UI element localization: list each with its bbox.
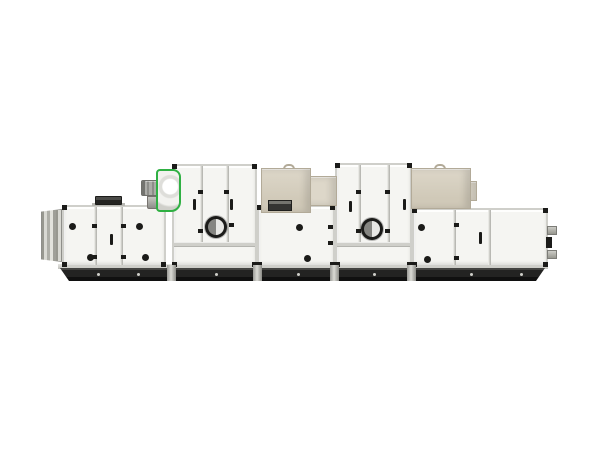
corner-bracket bbox=[161, 262, 166, 267]
base-rail-segment bbox=[416, 268, 545, 281]
bolt-head bbox=[137, 273, 140, 276]
hinge-tab bbox=[198, 190, 203, 194]
door-knob bbox=[69, 223, 76, 230]
hinge-tab bbox=[121, 224, 126, 228]
door-handle bbox=[193, 199, 196, 210]
hinge-tab bbox=[454, 256, 459, 260]
corner-bracket bbox=[62, 262, 67, 267]
hinge-tab bbox=[229, 223, 234, 227]
base-foot bbox=[407, 265, 416, 281]
fan-housing bbox=[156, 169, 181, 212]
door-knob bbox=[424, 256, 431, 263]
base-foot bbox=[330, 265, 339, 281]
product-photo-air-handling-unit bbox=[0, 0, 600, 450]
hinge-tab bbox=[92, 224, 97, 228]
hinge-tab bbox=[385, 229, 390, 233]
inspection-porthole bbox=[361, 218, 383, 240]
base-foot bbox=[167, 265, 176, 281]
hinge-tab bbox=[198, 229, 203, 233]
corner-bracket bbox=[543, 262, 548, 267]
corner-bracket bbox=[543, 208, 548, 213]
section-filter-1 bbox=[172, 164, 257, 267]
section-intake bbox=[62, 205, 166, 267]
corner-bracket bbox=[252, 164, 257, 169]
coil-box-1 bbox=[261, 168, 311, 213]
porthole-glass bbox=[364, 221, 380, 237]
horizontal-rail bbox=[174, 242, 255, 247]
hinge-tab bbox=[92, 255, 97, 259]
hinge-tab bbox=[328, 225, 333, 229]
inlet-louver bbox=[41, 209, 62, 262]
coil-box-2 bbox=[411, 168, 471, 209]
coil-box-duct bbox=[310, 176, 337, 206]
roof-vent-hood bbox=[95, 196, 122, 205]
hinge-tab bbox=[224, 190, 229, 194]
base-foot bbox=[253, 265, 262, 281]
hinge-tab bbox=[385, 190, 390, 194]
door-handle bbox=[349, 201, 352, 212]
bolt-head bbox=[470, 273, 473, 276]
corner-bracket bbox=[335, 163, 340, 168]
corner-bracket bbox=[62, 205, 67, 210]
door-handle bbox=[110, 234, 113, 245]
door-knob bbox=[142, 254, 149, 261]
side-bracket bbox=[546, 237, 552, 248]
bolt-head bbox=[297, 273, 300, 276]
section-end bbox=[412, 208, 548, 267]
pipe-stub bbox=[547, 250, 557, 259]
door-knob bbox=[304, 255, 311, 262]
panel-mullion bbox=[226, 166, 229, 243]
panel-mullion bbox=[488, 210, 491, 265]
horizontal-rail bbox=[337, 242, 410, 247]
coil-box-vent-slot bbox=[268, 200, 292, 211]
pipe-stub bbox=[547, 226, 557, 235]
door-handle bbox=[403, 199, 406, 210]
door-knob bbox=[418, 224, 425, 231]
door-handle bbox=[479, 232, 482, 244]
hinge-tab bbox=[356, 190, 361, 194]
base-rail-segment bbox=[60, 268, 168, 281]
hinge-tab bbox=[328, 241, 333, 245]
porthole-glass bbox=[208, 219, 224, 235]
bolt-head bbox=[520, 273, 523, 276]
door-knob bbox=[296, 224, 303, 231]
bolt-head bbox=[373, 273, 376, 276]
hinge-tab bbox=[121, 255, 126, 259]
bolt-head bbox=[215, 273, 218, 276]
inspection-porthole bbox=[205, 216, 227, 238]
door-knob bbox=[136, 223, 143, 230]
door-handle bbox=[230, 199, 233, 210]
section-mid bbox=[257, 205, 335, 267]
hinge-tab bbox=[454, 223, 459, 227]
section-filter-2 bbox=[335, 163, 412, 267]
coil-box-2-tab bbox=[470, 181, 477, 201]
bolt-head bbox=[97, 273, 100, 276]
